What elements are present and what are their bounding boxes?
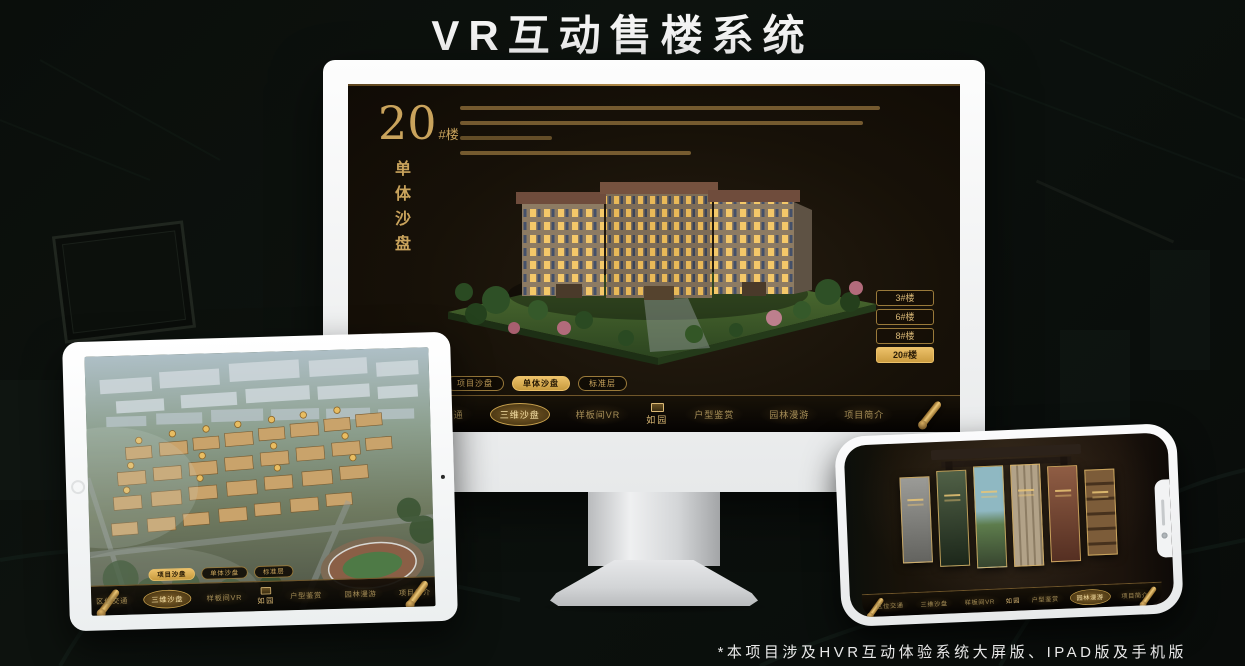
nav-item-garden-roam[interactable]: 园林漫游 — [1069, 588, 1110, 605]
tablet-subtab-single-sandtable[interactable]: 单体沙盘 — [201, 566, 248, 579]
nav-item-floorplans[interactable]: 户型鉴赏 — [282, 586, 329, 604]
tablet-subtab-project-sandtable[interactable]: 项目沙盘 — [148, 568, 195, 581]
screen-top-accent-line — [348, 84, 960, 86]
scene-card[interactable] — [899, 477, 933, 564]
building-headline: 20#楼 — [378, 100, 459, 146]
building-3d-viewport[interactable] — [444, 142, 882, 382]
phone-notch — [1154, 479, 1172, 558]
page-title: VR互动售楼系统 — [0, 2, 1245, 63]
brand-logo: 如园 — [1005, 595, 1020, 604]
floor-button-6[interactable]: 6#楼 — [876, 309, 934, 325]
scene-card-gallery — [899, 461, 1118, 572]
tablet-camera-icon — [441, 474, 445, 478]
background-plaque — [52, 220, 196, 343]
subtab-standard-floor[interactable]: 标准层 — [578, 376, 627, 391]
scene-card[interactable] — [936, 470, 970, 567]
phone-device: 区位交通 三维沙盘 样板间VR 如园 户型鉴赏 园林漫游 项目简介 — [834, 423, 1184, 627]
nav-item-location[interactable]: 区位交通 — [88, 592, 135, 610]
scene-card[interactable] — [1047, 465, 1081, 562]
nav-item-project-intro[interactable]: 项目简介 — [835, 404, 893, 425]
brand-logo-text: 如园 — [257, 595, 275, 606]
brand-logo: 如园 — [646, 403, 668, 426]
floor-button-20[interactable]: 20#楼 — [876, 347, 934, 363]
sandtable-subtabs: 项目沙盘 单体沙盘 标准层 — [446, 376, 627, 391]
nav-item-showroom-vr[interactable]: 样板间VR — [958, 593, 1001, 609]
tablet-device: 项目沙盘 单体沙盘 标准层 区位交通 三维沙盘 样板间VR 如园 户型鉴赏 园林… — [62, 332, 458, 632]
nav-item-3d-sandtable[interactable]: 三维沙盘 — [143, 589, 192, 609]
building-number-suffix: #楼 — [439, 127, 459, 142]
navbar-items: 区位交通 三维沙盘 样板间VR 如园 户型鉴赏 园林漫游 项目简介 — [88, 582, 435, 610]
stage: VR互动售楼系统 20#楼 单体沙盘 — [0, 0, 1245, 666]
brand-seal-icon — [651, 403, 664, 412]
building-3d-model — [444, 142, 882, 382]
navbar-items: 区位交通 三维沙盘 样板间VR 如园 户型鉴赏 园林漫游 项目简介 — [415, 403, 894, 426]
scene-card[interactable] — [1084, 469, 1118, 556]
brand-seal-icon — [260, 587, 271, 594]
text-line — [460, 106, 880, 110]
floor-button-8[interactable]: 8#楼 — [876, 328, 934, 344]
nav-item-3d-sandtable[interactable]: 三维沙盘 — [490, 403, 550, 426]
brand-logo-text: 如园 — [646, 413, 668, 426]
nav-item-location[interactable]: 区位交通 — [870, 597, 910, 613]
nav-item-garden-roam[interactable]: 园林漫游 — [337, 585, 384, 603]
tablet-home-button[interactable] — [71, 479, 85, 493]
phone-screen[interactable]: 区位交通 三维沙盘 样板间VR 如园 户型鉴赏 园林漫游 项目简介 — [844, 432, 1175, 617]
tablet-subtab-standard-floor[interactable]: 标准层 — [254, 565, 294, 578]
text-line — [460, 121, 863, 125]
text-line — [460, 136, 552, 140]
subtab-single-sandtable[interactable]: 单体沙盘 — [512, 376, 570, 391]
brand-logo-text: 如园 — [1005, 595, 1020, 604]
building-number: 20 — [378, 96, 437, 150]
nav-item-showroom-vr[interactable]: 样板间VR — [567, 404, 630, 425]
nav-item-showroom-vr[interactable]: 样板间VR — [199, 588, 249, 606]
nav-item-garden-roam[interactable]: 园林漫游 — [760, 404, 818, 425]
phone-speaker-icon — [1161, 499, 1165, 525]
scene-card[interactable] — [973, 466, 1007, 569]
scene-card[interactable] — [1010, 464, 1044, 567]
menu-scroll-button[interactable] — [919, 400, 943, 428]
monitor-stand-neck — [588, 492, 720, 566]
floor-button-group: 3#楼 6#楼 8#楼 20#楼 — [876, 290, 934, 363]
tablet-screen[interactable]: 项目沙盘 单体沙盘 标准层 区位交通 三维沙盘 样板间VR 如园 户型鉴赏 园林… — [84, 347, 435, 616]
nav-item-floorplans[interactable]: 户型鉴赏 — [1025, 591, 1065, 607]
brand-logo: 如园 — [257, 587, 275, 606]
building-subtitle-vertical: 单体沙盘 — [388, 160, 412, 260]
nav-item-floorplans[interactable]: 户型鉴赏 — [685, 404, 743, 425]
footnote-text: *本项目涉及HVR互动体验系统大屏版、IPAD版及手机版 — [718, 641, 1187, 662]
phone-camera-icon — [1161, 532, 1167, 538]
subtab-project-sandtable[interactable]: 项目沙盘 — [446, 376, 504, 391]
floor-button-3[interactable]: 3#楼 — [876, 290, 934, 306]
nav-item-3d-sandtable[interactable]: 三维沙盘 — [914, 595, 954, 611]
